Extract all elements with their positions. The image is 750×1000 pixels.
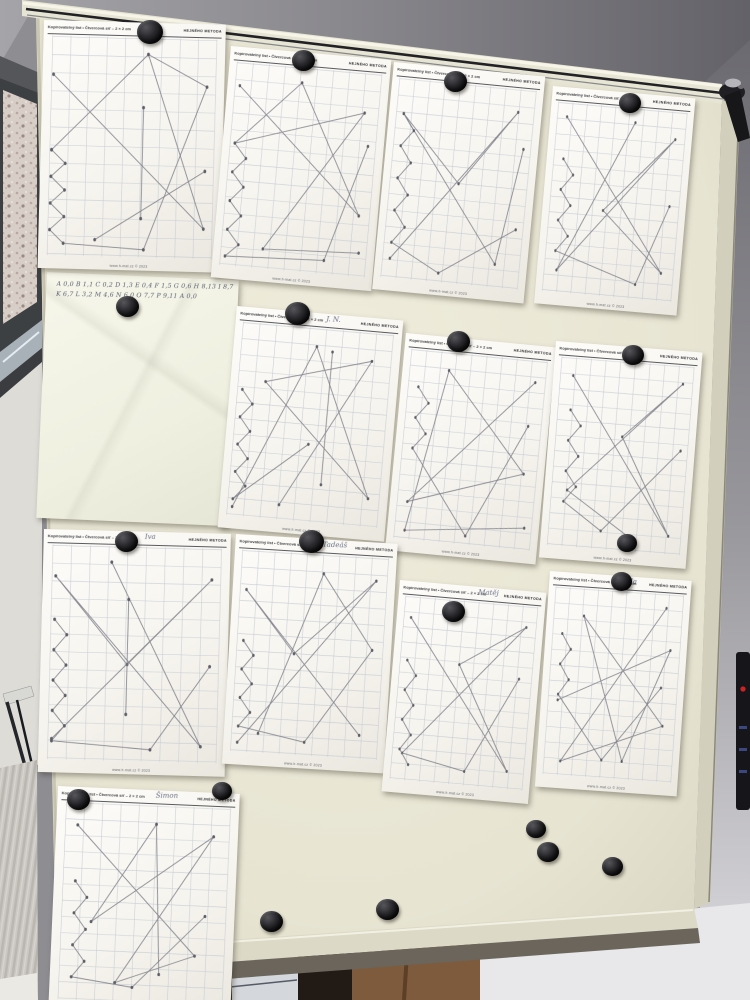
magnet: [137, 20, 163, 44]
grid-graph: [538, 100, 691, 303]
worksheet-header-title: Kopírovatelný list • Čtvercová síť – 2 ×…: [48, 24, 131, 31]
grid-graph: [389, 347, 552, 552]
pencil-graph: [47, 50, 209, 253]
worksheet-brand: HEJNÉHO METODA: [361, 322, 399, 329]
handwritten-coordinates-line1: A 0,0 B 1,1 C 0,2 D 1,3 E 0,4 F 1,5 G 0,…: [56, 281, 233, 291]
grid-lines: [394, 349, 548, 551]
worksheet-brand: HEJNÉHO METODA: [189, 538, 227, 543]
magnet: [116, 296, 139, 317]
papers-layer: A 0,0 B 1,1 C 0,2 D 1,3 E 0,4 F 1,5 G 0,…: [0, 0, 750, 1000]
magnet: [376, 899, 399, 920]
pencil-graph: [231, 339, 382, 520]
worksheet-brand: HEJNÉHO METODA: [184, 29, 222, 34]
grid-graph: [226, 548, 394, 761]
magnet: [602, 857, 623, 876]
grid-lines: [542, 102, 687, 303]
worksheet-brand: HEJNÉHO METODA: [660, 354, 698, 361]
magnet: [444, 71, 467, 92]
worksheet-paper: Kopírovatelný list • Čtvercová síť – 2 ×…: [48, 786, 240, 1000]
worksheet-brand: HEJNÉHO METODA: [653, 100, 691, 107]
grid-graph: [385, 594, 542, 792]
magnet: [285, 302, 310, 325]
grid-graph: [543, 355, 699, 556]
worksheet-brand: HEJNÉHO METODA: [503, 78, 541, 86]
grid-graph: [539, 585, 688, 784]
scene: A 0,0 B 1,1 C 0,2 D 1,3 E 0,4 F 1,5 G 0,…: [0, 0, 750, 1000]
grid-graph: [52, 800, 235, 1000]
magnet: [447, 331, 470, 352]
worksheet-paper: Kopírovatelný list • Čtvercová síť – 2 ×…: [372, 62, 545, 304]
worksheet-paper: Kopírovatelný list • Čtvercová síť – 2 ×…: [222, 534, 398, 773]
grid-graph: [42, 543, 227, 765]
worksheet-paper: Kopírovatelný list • Čtvercová síť – 2 ×…: [38, 529, 231, 777]
worksheet-paper: Kopírovatelný list • Čtvercová síť – 2 ×…: [218, 306, 404, 542]
worksheet-paper: Kopírovatelný list • Čtvercová síť – 2 ×…: [534, 86, 695, 316]
student-name-handwriting: Tadeáš: [323, 541, 348, 550]
magnet: [292, 50, 315, 71]
grid-graph: [41, 34, 221, 260]
grid-lines: [390, 595, 538, 790]
worksheet-brand: HEJNÉHO METODA: [504, 594, 542, 601]
grid-graph: [215, 60, 387, 279]
magnet: [115, 531, 138, 552]
student-name-handwriting: Šimon: [156, 792, 178, 800]
handwritten-coordinates-line2: K 6,7 L 3,2 M 4,6 N 6,0 O 7,7 P 9,11 A 0…: [56, 291, 233, 301]
pencil-graph: [224, 76, 375, 270]
student-name-handwriting: J. N.: [326, 315, 341, 324]
grid-graph: [376, 76, 541, 291]
grid-lines: [47, 35, 217, 259]
magnet: [299, 530, 324, 553]
magnet: [67, 789, 90, 810]
grid-lines: [47, 544, 221, 763]
student-name-handwriting: Iva: [144, 533, 155, 541]
worksheet-paper: Kopírovatelný list • Čtvercová síť – 2 ×…: [38, 20, 226, 273]
worksheet-brand: HEJNÉHO METODA: [649, 583, 687, 590]
worksheet-paper: Kopírovatelný list • Čtvercová síť – 2 ×…: [535, 571, 692, 796]
worksheet-brand: HEJNÉHO METODA: [514, 348, 552, 356]
worksheet-brand: HEJNÉHO METODA: [355, 546, 393, 552]
pencil-graph: [50, 559, 214, 753]
worksheet-brand: HEJNÉHO METODA: [349, 61, 387, 68]
worksheet-footer: www.h-mat.cz © 2023: [38, 766, 225, 775]
worksheet-paper: Kopírovatelný list • Čtvercová síť – 2 ×…: [385, 333, 556, 564]
magnet: [260, 911, 283, 932]
worksheet-footer: www.h-mat.cz © 2023: [38, 262, 220, 271]
grid-lines: [227, 322, 394, 528]
student-name-handwriting: Matěj: [478, 588, 499, 597]
grid-lines: [220, 62, 382, 278]
grid-graph: [222, 320, 399, 529]
magnet: [611, 572, 632, 591]
magnet: [442, 601, 465, 622]
worksheet-paper: Kopírovatelný list • Čtvercová síť – 2 ×…: [211, 46, 392, 291]
